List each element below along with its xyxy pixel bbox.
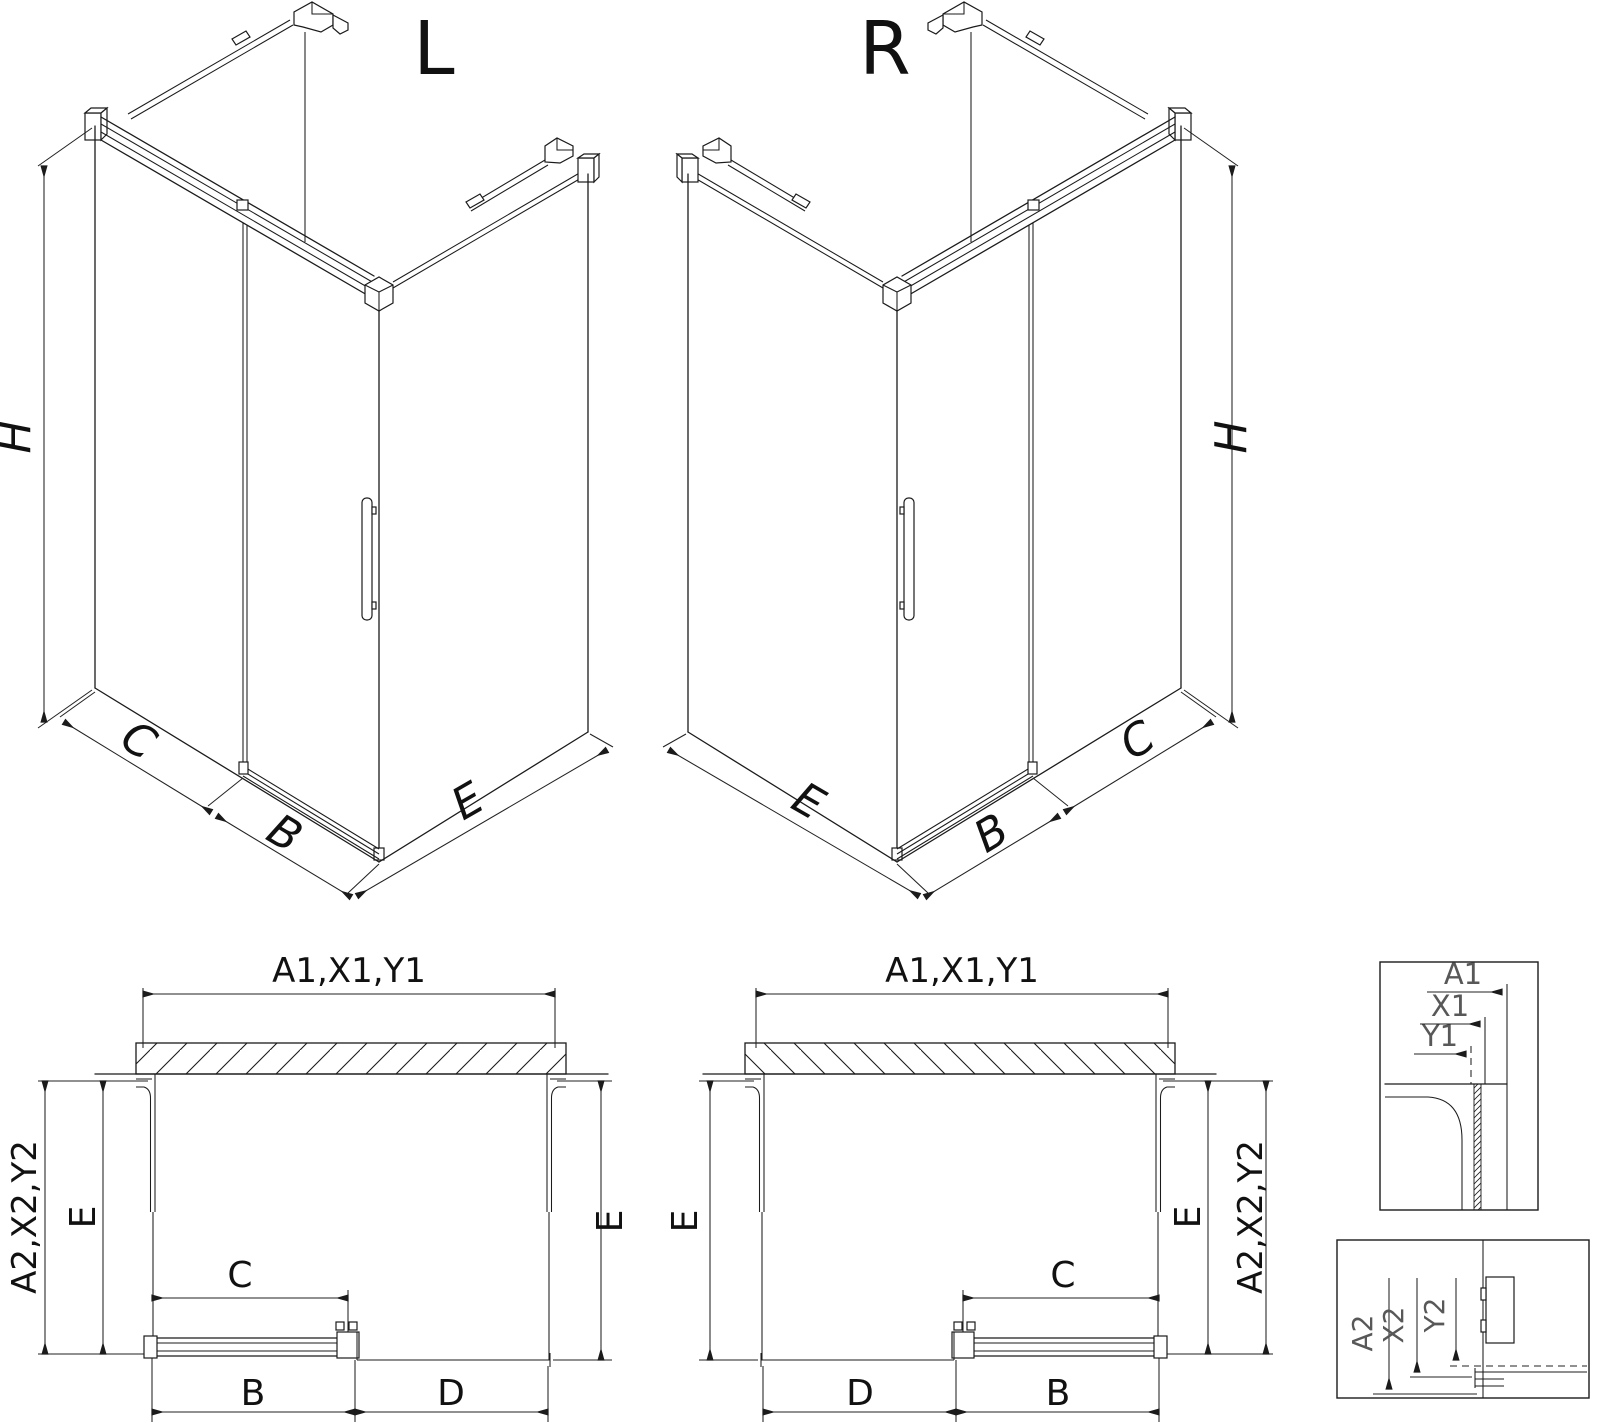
- drawing-page: L H C B E R H E B C A1,X1,Y1 A2,X2,Y2 E …: [0, 0, 1600, 1423]
- plan-left-dim-fixed: D: [437, 1373, 465, 1414]
- iso-view-right: R H E B C: [663, 2, 1257, 897]
- detail-depth-mid: X2: [1377, 1307, 1410, 1344]
- iso-right-dim-panel: C: [1111, 711, 1164, 771]
- plan-right-dim-fixed: D: [846, 1373, 874, 1414]
- iso-left-title: L: [413, 6, 454, 92]
- plan-view-right: A1,X1,Y1 E C D B E A2,X2,Y2: [665, 951, 1273, 1422]
- plan-right-dim-door: B: [1046, 1373, 1071, 1414]
- iso-left-dim-side: E: [443, 772, 493, 830]
- detail-depth-overall: A2: [1346, 1315, 1379, 1352]
- plan-right-dim-panel: C: [1050, 1255, 1075, 1296]
- plan-left-dim-door: B: [241, 1373, 266, 1414]
- detail-box-width: A1 X1 Y1: [1380, 957, 1538, 1210]
- iso-right-dim-height: H: [1206, 420, 1257, 453]
- plan-right-dim-depth: A2,X2,Y2: [1231, 1140, 1271, 1294]
- iso-left-dim-panel: C: [112, 711, 165, 771]
- detail-width-overall: A1: [1444, 957, 1482, 991]
- plan-left-dim-side-left: E: [63, 1206, 104, 1229]
- iso-right-dim-side: E: [783, 772, 833, 830]
- detail-box-depth: A2 X2 Y2: [1337, 1240, 1589, 1398]
- plan-left-dim-panel: C: [227, 1255, 252, 1296]
- iso-left-dim-height: H: [0, 420, 41, 453]
- plan-left-dim-side-right: E: [590, 1210, 631, 1233]
- detail-width-inner: Y1: [1421, 1019, 1458, 1053]
- plan-view-left: A1,X1,Y1 A2,X2,Y2 E E C B D: [5, 951, 631, 1422]
- shower-enclosure-technical-drawing: L H C B E R H E B C A1,X1,Y1 A2,X2,Y2 E …: [0, 0, 1600, 1423]
- plan-right-dim-side-left: E: [665, 1210, 706, 1233]
- plan-left-dim-depth: A2,X2,Y2: [5, 1140, 45, 1294]
- iso-right-title: R: [859, 6, 910, 92]
- iso-view-left: L H C B E: [0, 2, 613, 897]
- detail-depth-inner: Y2: [1418, 1298, 1451, 1334]
- detail-width-mid: X1: [1431, 989, 1469, 1023]
- plan-right-dim-width: A1,X1,Y1: [885, 951, 1039, 991]
- plan-right-dim-side-right: E: [1168, 1206, 1209, 1229]
- plan-left-dim-width: A1,X1,Y1: [272, 951, 426, 991]
